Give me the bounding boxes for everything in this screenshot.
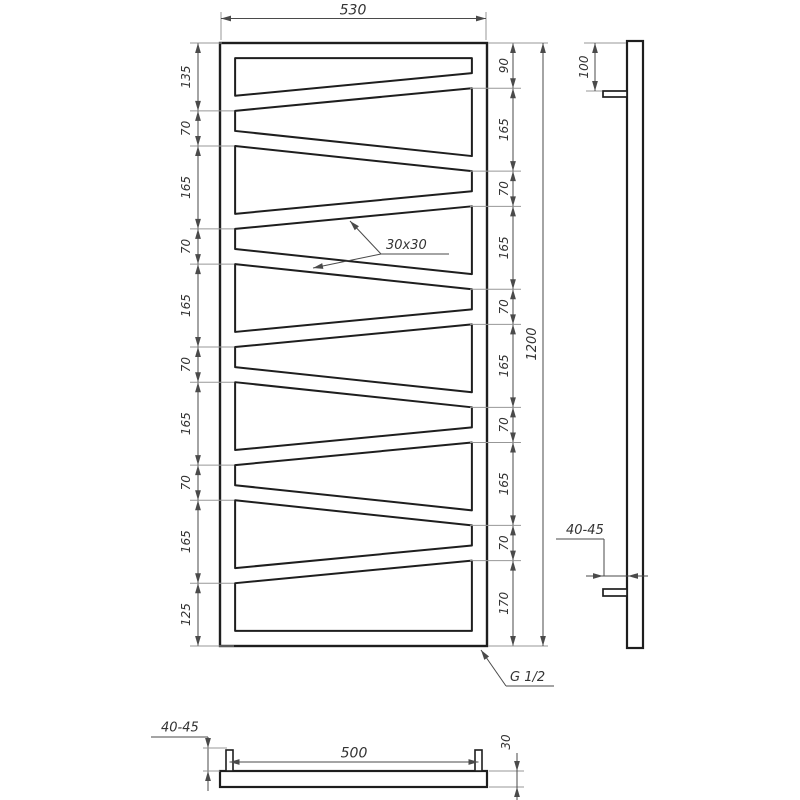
left-chain-label: 135: [179, 65, 193, 88]
dimension-arrow: [195, 382, 201, 392]
dimension-arrow: [510, 88, 516, 98]
dimension-arrow: [195, 372, 201, 382]
right-chain-label: 70: [497, 417, 511, 433]
dimension-arrow: [195, 337, 201, 347]
side-bracket-offset-label: 100: [577, 55, 591, 78]
dimension-arrow: [510, 515, 516, 525]
dimension-arrow: [479, 648, 489, 660]
dimension-arrow: [510, 78, 516, 88]
right-chain-label: 70: [497, 181, 511, 197]
dimension-arrow: [510, 636, 516, 646]
right-chain-label: 165: [497, 236, 511, 259]
dimension-arrow: [510, 561, 516, 571]
front-width-label: 530: [340, 3, 367, 19]
left-chain-label: 165: [179, 412, 193, 435]
side-bracket-bottom: [603, 589, 627, 596]
dimension-arrow: [592, 43, 598, 53]
dimension-arrow: [195, 500, 201, 510]
dimension-arrow: [195, 146, 201, 156]
left-chain-label: 70: [179, 357, 193, 373]
bottom-depth-label: 30: [499, 734, 513, 750]
dimension-arrow: [514, 761, 520, 771]
dimension-arrow: [510, 196, 516, 206]
dimension-arrow: [205, 771, 211, 781]
dimension-arrow: [195, 455, 201, 465]
dimension-arrow: [476, 16, 486, 22]
dimension-arrow: [195, 264, 201, 274]
dimension-arrow: [592, 81, 598, 91]
dimension-arrow: [540, 636, 546, 646]
bottom-wall-clearance-label: 40-45: [161, 721, 199, 736]
left-chain-label: 165: [179, 530, 193, 553]
bottom-stub-left: [226, 750, 233, 771]
right-chain-label: 70: [497, 299, 511, 315]
dimension-arrow: [510, 171, 516, 181]
dimension-arrow: [195, 636, 201, 646]
right-chain-label: 165: [497, 354, 511, 377]
dimension-arrow: [195, 219, 201, 229]
dimension-arrow: [510, 407, 516, 417]
dimension-arrow: [510, 43, 516, 53]
dimension-arrow: [195, 347, 201, 357]
right-chain-label: 165: [497, 118, 511, 141]
dimension-arrow: [195, 43, 201, 53]
right-chain-label: 70: [497, 535, 511, 551]
dimension-arrow: [510, 525, 516, 535]
bottom-stub-right: [475, 750, 482, 771]
dimension-arrow: [205, 738, 211, 748]
right-chain-label: 165: [497, 472, 511, 495]
tube-section-label: 30x30: [386, 238, 427, 253]
dimension-arrow: [195, 111, 201, 121]
left-chain-label: 70: [179, 475, 193, 491]
dimension-arrow: [195, 490, 201, 500]
dimension-arrow: [514, 787, 520, 797]
dimension-arrow: [510, 397, 516, 407]
dimension-arrow: [221, 16, 231, 22]
dimension-arrow: [510, 289, 516, 299]
dimension-arrow: [195, 229, 201, 239]
bottom-profile-bar: [220, 771, 487, 787]
dimension-arrow: [195, 254, 201, 264]
front-height-label: 1200: [525, 327, 540, 360]
dimension-arrow: [593, 573, 603, 579]
left-chain-label: 165: [179, 176, 193, 199]
dimension-arrow: [510, 279, 516, 289]
thread-size-label: G 1/2: [510, 670, 545, 685]
side-profile-bar: [627, 41, 643, 648]
left-chain-label: 70: [179, 239, 193, 255]
dimension-arrow: [195, 101, 201, 111]
side-wall-clearance-label: 40-45: [566, 523, 604, 538]
dimension-arrow: [510, 161, 516, 171]
dimension-arrow: [510, 314, 516, 324]
dimension-arrow: [195, 583, 201, 593]
left-chain-label: 70: [179, 120, 193, 136]
side-bracket-top: [603, 91, 627, 97]
drawing-sheet: 5301357016570165701657016512590165701657…: [0, 0, 800, 800]
dimension-arrow: [540, 43, 546, 53]
dimension-arrow: [510, 324, 516, 334]
dimension-arrow: [195, 573, 201, 583]
dimension-arrow: [195, 465, 201, 475]
towel-rail-technical-drawing: 5301357016570165701657016512590165701657…: [0, 0, 800, 800]
dimension-arrow: [510, 206, 516, 216]
dimension-arrow: [195, 136, 201, 146]
left-chain-label: 165: [179, 294, 193, 317]
dimension-arrow: [510, 432, 516, 442]
mount-spacing-label: 500: [341, 746, 368, 762]
left-chain-label: 125: [179, 603, 193, 626]
right-chain-label: 170: [497, 591, 511, 614]
right-chain-label: 90: [497, 58, 511, 74]
dimension-arrow: [510, 442, 516, 452]
dimension-arrow: [510, 551, 516, 561]
